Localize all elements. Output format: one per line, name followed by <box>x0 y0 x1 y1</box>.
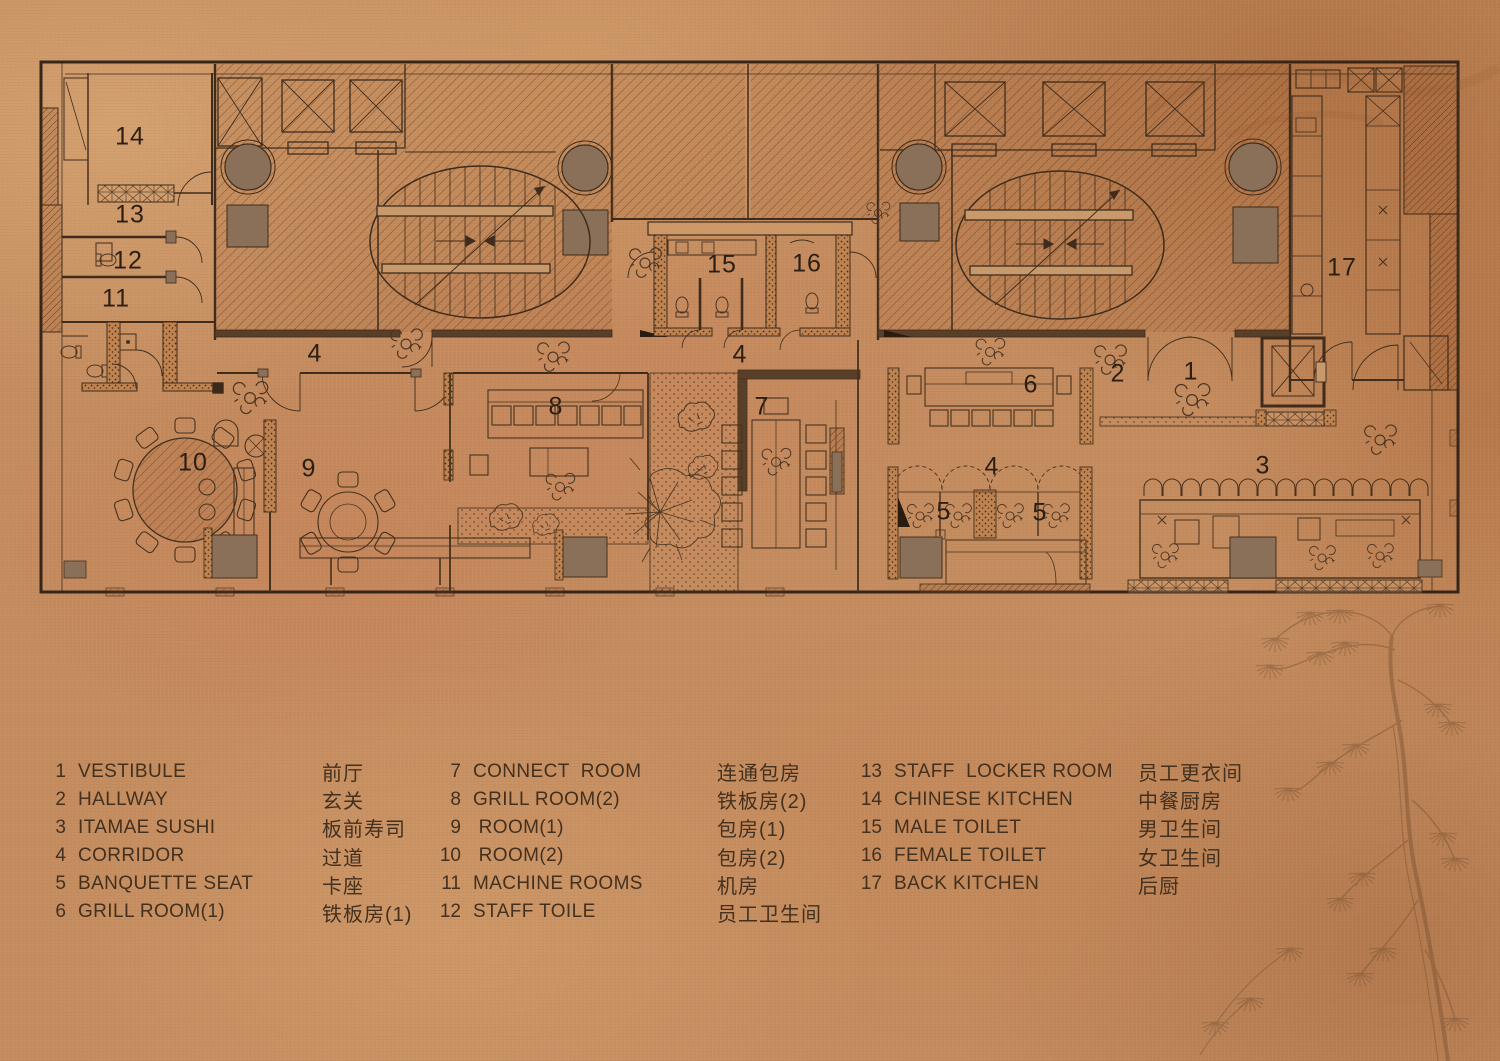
legend-en: STAFF LOCKER ROOM <box>894 761 1126 783</box>
legend-zh: 玄关 <box>322 785 412 814</box>
toilet-block-15-16 <box>628 222 876 350</box>
legend-item-5: 5BANQUETTE SEAT卡座 <box>40 870 412 898</box>
legend-num: 7 <box>435 761 461 783</box>
room-label-6: 6 <box>1024 373 1039 398</box>
legend-num: 14 <box>856 789 882 811</box>
room-label-12: 12 <box>113 249 143 274</box>
legend-item-2: 2HALLWAY玄关 <box>40 785 412 813</box>
core-west <box>215 64 668 367</box>
legend-en: BACK KITCHEN <box>894 873 1126 895</box>
legend-en: VESTIBULE <box>78 761 310 783</box>
legend-num: 2 <box>40 789 66 811</box>
room-label-15: 15 <box>707 253 737 278</box>
legend-num: 10 <box>435 845 461 867</box>
legend-zh: 卡座 <box>322 870 412 899</box>
sushi-stools <box>1144 479 1428 496</box>
legend-zh: 前厅 <box>322 757 412 786</box>
room-label-13: 13 <box>115 203 145 228</box>
legend-en: CORRIDOR <box>78 845 310 867</box>
room-label-2: 2 <box>1111 362 1126 387</box>
room-label-4-mid: 4 <box>733 343 748 368</box>
room-label-1: 1 <box>1184 360 1199 385</box>
legend-en: BANQUETTE SEAT <box>78 873 310 895</box>
legend-en: GRILL ROOM(2) <box>473 789 705 811</box>
legend-item-6: 6GRILL ROOM(1)铁板房(1) <box>40 898 412 926</box>
legend-item-1: 1VESTIBULE前厅 <box>40 757 412 785</box>
legend-item-15: 15MALE TOILET男卫生间 <box>856 813 1243 841</box>
legend-item-16: 16FEMALE TOILET女卫生间 <box>856 842 1243 870</box>
room-label-11: 11 <box>102 287 130 312</box>
sushi-bar-3 <box>1128 479 1442 593</box>
legend-zh: 包房(2) <box>717 842 822 871</box>
legend-item-10: 10 ROOM(2)包房(2) <box>435 842 822 870</box>
legend-item-11: 11MACHINE ROOMS机房 <box>435 870 822 898</box>
room-label-4-east: 4 <box>985 455 1000 480</box>
legend-item-12: 12STAFF TOILE员工卫生间 <box>435 898 822 926</box>
legend-en: GRILL ROOM(1) <box>78 901 310 923</box>
legend-item-17: 17BACK KITCHEN后厨 <box>856 870 1243 898</box>
legend-en: MACHINE ROOMS <box>473 873 705 895</box>
room-label-5a: 5 <box>937 500 952 525</box>
legend-zh: 连通包房 <box>717 757 822 786</box>
legend-zh: 员工更衣间 <box>1138 757 1243 786</box>
legend-num: 6 <box>40 901 66 923</box>
legend-en: ROOM(2) <box>473 845 705 867</box>
legend-zh: 包房(1) <box>717 813 822 842</box>
room-label-10: 10 <box>178 451 208 476</box>
legend-num: 12 <box>435 901 461 923</box>
legend-item-3: 3ITAMAE SUSHI板前寿司 <box>40 813 412 841</box>
floor-plan-page: 14 13 12 11 4 10 9 8 15 16 4 7 6 2 1 4 5… <box>0 0 1500 1061</box>
legend-num: 15 <box>856 817 882 839</box>
legend-num: 4 <box>40 845 66 867</box>
legend-en: CONNECT ROOM <box>473 761 705 783</box>
legend-num: 9 <box>435 817 461 839</box>
legend-num: 17 <box>856 873 882 895</box>
legend-column-3: 13STAFF LOCKER ROOM员工更衣间 14CHINESE KITCH… <box>856 757 1243 898</box>
vestibule-zone <box>1100 336 1448 454</box>
legend-en: FEMALE TOILET <box>894 845 1126 867</box>
legend-zh: 后厨 <box>1138 870 1243 899</box>
legend-item-13: 13STAFF LOCKER ROOM员工更衣间 <box>856 757 1243 785</box>
room-8 <box>300 373 648 585</box>
legend-column-2: 7CONNECT ROOM连通包房 8GRILL ROOM(2)铁板房(2) 9… <box>435 757 822 926</box>
room-label-3: 3 <box>1256 454 1271 479</box>
legend-zh: 员工卫生间 <box>717 898 822 927</box>
legend-zh: 铁板房(1) <box>322 898 412 927</box>
legend-num: 3 <box>40 817 66 839</box>
legend-num: 16 <box>856 845 882 867</box>
legend-zh: 铁板房(2) <box>717 785 822 814</box>
legend-num: 11 <box>435 873 461 895</box>
room-9 <box>300 373 453 592</box>
legend-en: ITAMAE SUSHI <box>78 817 310 839</box>
room-6 <box>888 338 1093 444</box>
legend-item-4: 4CORRIDOR过道 <box>40 842 412 870</box>
legend-zh: 板前寿司 <box>322 813 412 842</box>
legend-en: HALLWAY <box>78 789 310 811</box>
legend-zh: 过道 <box>322 842 412 871</box>
legend-item-14: 14CHINESE KITCHEN中餐厨房 <box>856 785 1243 813</box>
legend-zh: 女卫生间 <box>1138 842 1243 871</box>
legend-column-1: 1VESTIBULE前厅 2HALLWAY玄关 3ITAMAE SUSHI板前寿… <box>40 757 412 926</box>
legend-num: 13 <box>856 761 882 783</box>
legend-en: MALE TOILET <box>894 817 1126 839</box>
room-label-9: 9 <box>302 457 317 482</box>
legend-num: 5 <box>40 873 66 895</box>
legend-zh: 中餐厨房 <box>1138 785 1243 814</box>
legend-en: CHINESE KITCHEN <box>894 789 1126 811</box>
room-label-8: 8 <box>549 395 564 420</box>
core-east <box>878 64 1290 392</box>
room-7 <box>722 340 860 592</box>
legend-en: STAFF TOILE <box>473 901 705 923</box>
room-label-5b: 5 <box>1033 501 1048 526</box>
banquette-zone <box>888 466 1092 593</box>
legend-zh: 男卫生间 <box>1138 813 1243 842</box>
room-label-14: 14 <box>115 125 145 150</box>
room-label-17: 17 <box>1327 256 1357 281</box>
room-label-7: 7 <box>755 395 770 420</box>
legend-en: ROOM(1) <box>473 817 705 839</box>
legend-item-8: 8GRILL ROOM(2)铁板房(2) <box>435 785 822 813</box>
elevator <box>1262 338 1326 406</box>
room-label-16: 16 <box>792 252 822 277</box>
left-wing-rooms <box>42 73 223 393</box>
legend-num: 8 <box>435 789 461 811</box>
legend-zh: 机房 <box>717 870 822 899</box>
room-label-4-west: 4 <box>308 342 323 367</box>
legend-num: 1 <box>40 761 66 783</box>
legend-item-7: 7CONNECT ROOM连通包房 <box>435 757 822 785</box>
legend-item-9: 9 ROOM(1)包房(1) <box>435 813 822 841</box>
room-10 <box>64 418 276 592</box>
round-table-9 <box>300 472 397 572</box>
